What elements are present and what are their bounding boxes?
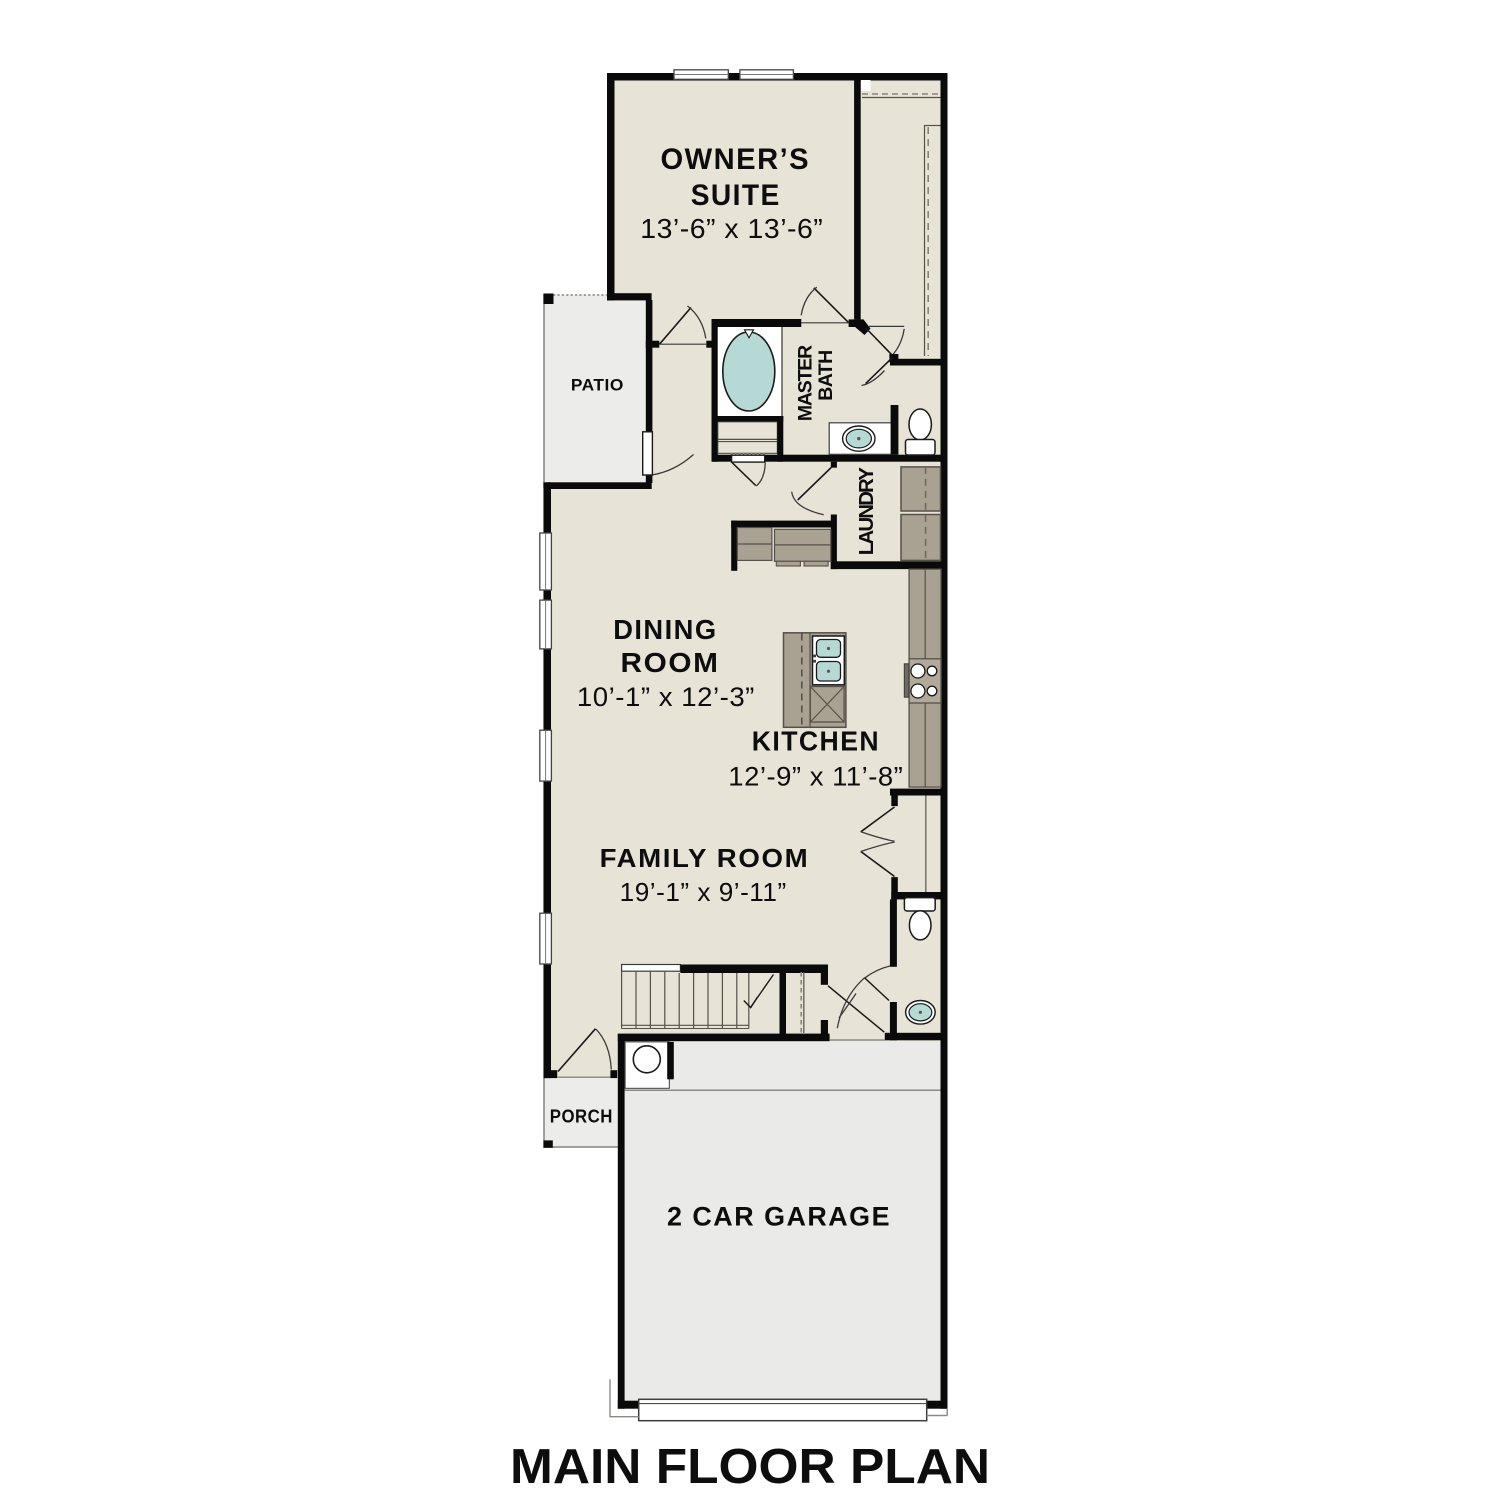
svg-text:FAMILY ROOM: FAMILY ROOM xyxy=(600,843,810,873)
svg-text:SUITE: SUITE xyxy=(691,179,781,212)
svg-text:KITCHEN: KITCHEN xyxy=(752,726,880,757)
svg-text:ROOM: ROOM xyxy=(621,647,720,678)
svg-text:OWNER’S: OWNER’S xyxy=(661,143,811,176)
svg-text:10’-1” x 12’-3”: 10’-1” x 12’-3” xyxy=(577,682,755,712)
svg-text:DINING: DINING xyxy=(613,614,717,645)
svg-text:13’-6” x 13’-6”: 13’-6” x 13’-6” xyxy=(640,213,823,244)
svg-text:19’-1” x 9’-11”: 19’-1” x 9’-11” xyxy=(620,877,787,907)
svg-text:LAUNDRY: LAUNDRY xyxy=(855,467,878,555)
svg-text:2 CAR GARAGE: 2 CAR GARAGE xyxy=(667,1202,891,1232)
svg-text:PATIO: PATIO xyxy=(571,376,624,395)
svg-text:MASTER: MASTER xyxy=(795,345,817,421)
svg-text:12’-9” x 11’-8”: 12’-9” x 11’-8” xyxy=(728,762,903,792)
svg-text:PORCH: PORCH xyxy=(550,1106,613,1127)
svg-text:MAIN FLOOR PLAN: MAIN FLOOR PLAN xyxy=(510,1439,990,1494)
svg-text:BATH: BATH xyxy=(815,350,837,400)
